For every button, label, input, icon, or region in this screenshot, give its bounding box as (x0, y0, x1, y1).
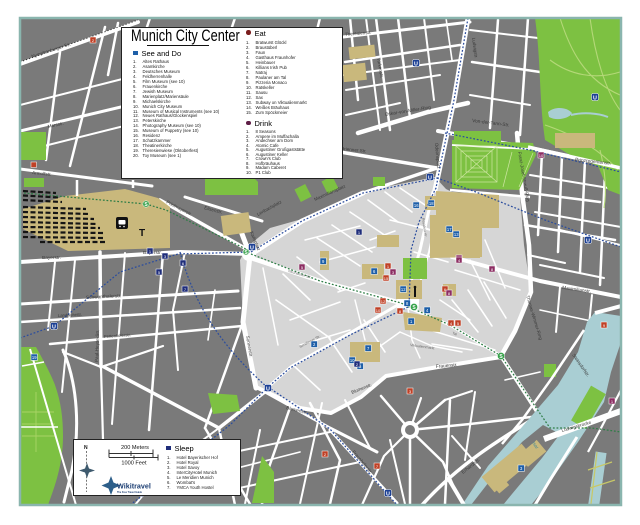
svg-text:N: N (84, 445, 88, 451)
svg-text:Bayerstr.: Bayerstr. (42, 255, 61, 261)
svg-text:12: 12 (401, 287, 406, 292)
svg-text:16: 16 (414, 203, 419, 208)
svg-text:U: U (266, 386, 270, 392)
svg-text:U: U (586, 238, 590, 244)
svg-text:U: U (428, 175, 432, 181)
svg-text:U: U (52, 324, 56, 330)
svg-text:15: 15 (384, 276, 389, 281)
svg-text:T: T (139, 228, 145, 239)
svg-text:The Free Travel Guide: The Free Travel Guide (117, 491, 143, 494)
svg-text:10: 10 (539, 153, 544, 158)
svg-text:U: U (250, 245, 254, 251)
svg-text:19: 19 (32, 355, 37, 360)
svg-text:1000 Feet: 1000 Feet (121, 461, 147, 467)
svg-text:U: U (593, 95, 597, 101)
svg-text:18: 18 (429, 201, 434, 206)
svg-text:Wikitravel: Wikitravel (117, 482, 151, 491)
svg-text:12: 12 (381, 299, 386, 304)
svg-text:17: 17 (447, 227, 452, 232)
svg-text:13: 13 (454, 232, 459, 237)
svg-text:10: 10 (376, 308, 381, 313)
svg-text:200 Meters: 200 Meters (121, 445, 149, 451)
svg-text:U: U (414, 61, 418, 67)
svg-text:U: U (386, 491, 390, 497)
